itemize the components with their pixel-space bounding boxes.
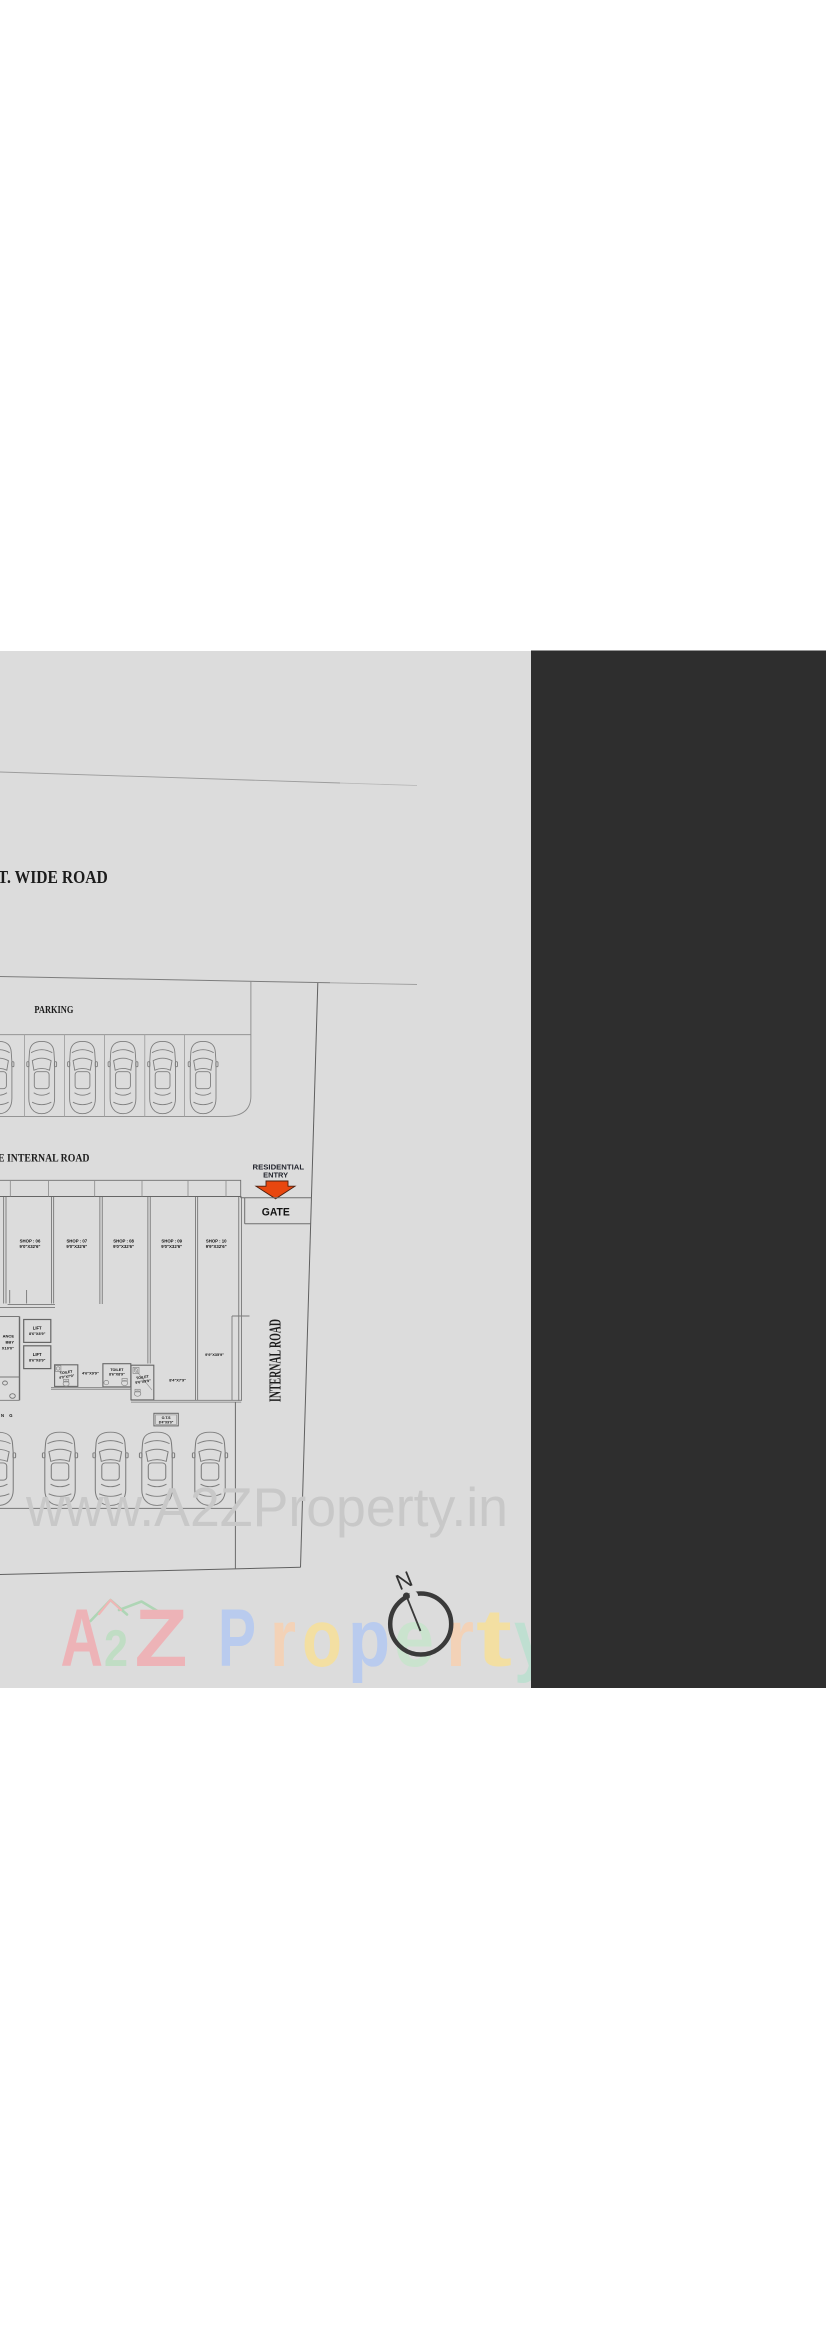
svg-text:SHOP : 07: SHOP : 07 (66, 1239, 87, 1244)
svg-text:P: P (218, 1593, 256, 1684)
svg-text:E INTERNAL ROAD: E INTERNAL ROAD (0, 1150, 90, 1164)
svg-text:SHOP : 06: SHOP : 06 (20, 1239, 41, 1244)
svg-text:INTERNAL ROAD: INTERNAL ROAD (266, 1319, 285, 1402)
svg-text:4'6"X9'9": 4'6"X9'9" (82, 1371, 99, 1376)
svg-text:LIFT: LIFT (33, 1352, 42, 1357)
svg-text:RESIDENTIAL: RESIDENTIAL (253, 1164, 305, 1171)
svg-text:SHOP : 10: SHOP : 10 (206, 1239, 227, 1244)
svg-text:9'0"X32'6": 9'0"X32'6" (113, 1244, 134, 1249)
svg-text:Z: Z (135, 1593, 188, 1684)
svg-text:GATE: GATE (262, 1206, 290, 1218)
svg-text:ANCE: ANCE (3, 1334, 15, 1339)
svg-text:PARKING: PARKING (34, 1005, 73, 1016)
svg-text:8'6"X8'9": 8'6"X8'9" (29, 1358, 46, 1362)
svg-text:8'6"X8'9": 8'6"X8'9" (29, 1332, 46, 1336)
svg-text:TOILET: TOILET (110, 1368, 124, 1372)
svg-text:www.A2ZProperty.in: www.A2ZProperty.in (25, 1477, 508, 1538)
svg-text:9'9"X35'9": 9'9"X35'9" (205, 1352, 224, 1357)
svg-text:O.T.S: O.T.S (162, 1416, 172, 1420)
svg-text:BBY: BBY (6, 1340, 15, 1345)
svg-text:9'0"X32'6": 9'0"X32'6" (66, 1244, 87, 1249)
svg-text:ENTRY: ENTRY (263, 1172, 288, 1179)
svg-text:2: 2 (104, 1620, 128, 1678)
svg-text:A: A (61, 1593, 104, 1684)
svg-text:o: o (302, 1593, 342, 1684)
svg-text:p: p (348, 1593, 390, 1684)
svg-text:8'4"X7'9": 8'4"X7'9" (169, 1378, 186, 1383)
svg-text:X10'0": X10'0" (2, 1346, 14, 1351)
svg-text:T. WIDE ROAD: T. WIDE ROAD (0, 867, 108, 887)
svg-text:N G: N G (1, 1413, 14, 1418)
svg-text:9'0"X32'6": 9'0"X32'6" (20, 1244, 41, 1249)
svg-text:e: e (394, 1593, 434, 1684)
svg-text:t: t (476, 1593, 512, 1684)
svg-text:r: r (446, 1593, 474, 1684)
svg-text:8'4"X9'0": 8'4"X9'0" (159, 1421, 174, 1425)
svg-text:r: r (270, 1593, 296, 1684)
svg-text:9'0"X32'6": 9'0"X32'6" (161, 1244, 182, 1249)
svg-text:LIFT: LIFT (33, 1326, 42, 1331)
svg-text:SHOP : 09: SHOP : 09 (161, 1239, 182, 1244)
svg-text:8'6"X8'9": 8'6"X8'9" (109, 1373, 125, 1377)
svg-text:9'9"X32'6": 9'9"X32'6" (206, 1244, 227, 1249)
svg-text:SHOP : 08: SHOP : 08 (113, 1239, 134, 1244)
